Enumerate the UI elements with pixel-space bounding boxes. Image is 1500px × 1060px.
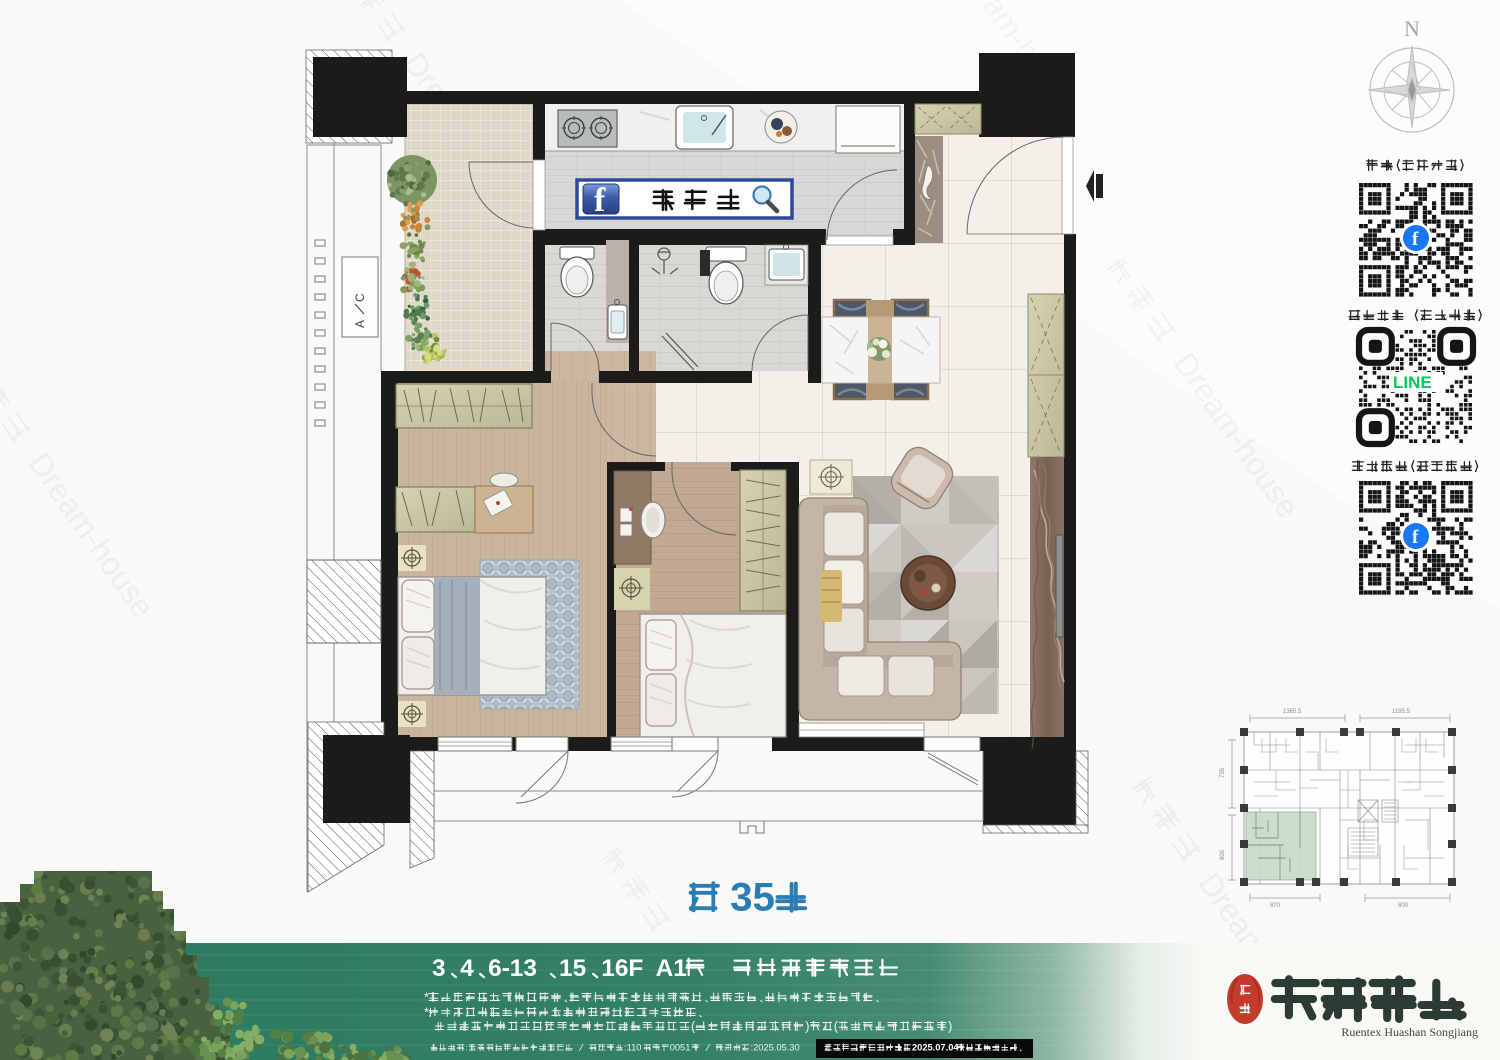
svg-text:800: 800 bbox=[1220, 849, 1226, 860]
svg-text:A: A bbox=[353, 320, 367, 328]
svg-text:): ) bbox=[948, 1019, 952, 1033]
svg-text:N: N bbox=[1404, 16, 1420, 41]
svg-text:15: 15 bbox=[559, 955, 586, 982]
svg-text::: : bbox=[465, 1043, 468, 1053]
svg-text:*: * bbox=[424, 1005, 429, 1019]
svg-text:LINE: LINE bbox=[1393, 373, 1432, 392]
svg-text:16F: 16F bbox=[601, 955, 643, 982]
svg-text:3: 3 bbox=[432, 955, 446, 982]
svg-text:6-13: 6-13 bbox=[488, 955, 537, 982]
svg-text:35: 35 bbox=[730, 875, 775, 920]
svg-text::2025.05.30: :2025.05.30 bbox=[751, 1043, 800, 1053]
svg-text:0051: 0051 bbox=[670, 1043, 691, 1053]
svg-text:4: 4 bbox=[460, 955, 474, 982]
svg-text:A1: A1 bbox=[656, 955, 687, 982]
svg-text:735: 735 bbox=[1220, 767, 1226, 778]
svg-text:2025.07.04: 2025.07.04 bbox=[912, 1043, 959, 1053]
svg-text:Ruentex Huashan Songjiang: Ruentex Huashan Songjiang bbox=[1341, 1025, 1478, 1039]
svg-text:1365.5: 1365.5 bbox=[1283, 709, 1302, 715]
svg-text:f: f bbox=[1412, 229, 1419, 250]
svg-text:1195.5: 1195.5 bbox=[1392, 709, 1411, 715]
svg-text:870: 870 bbox=[1270, 903, 1281, 909]
svg-text:f: f bbox=[594, 182, 606, 219]
svg-text::110: :110 bbox=[624, 1043, 641, 1053]
svg-text:800: 800 bbox=[1398, 903, 1409, 909]
svg-text:): ) bbox=[805, 1019, 809, 1033]
svg-text:f: f bbox=[1412, 527, 1419, 548]
svg-text:*: * bbox=[424, 990, 429, 1004]
svg-text:C: C bbox=[353, 293, 367, 302]
